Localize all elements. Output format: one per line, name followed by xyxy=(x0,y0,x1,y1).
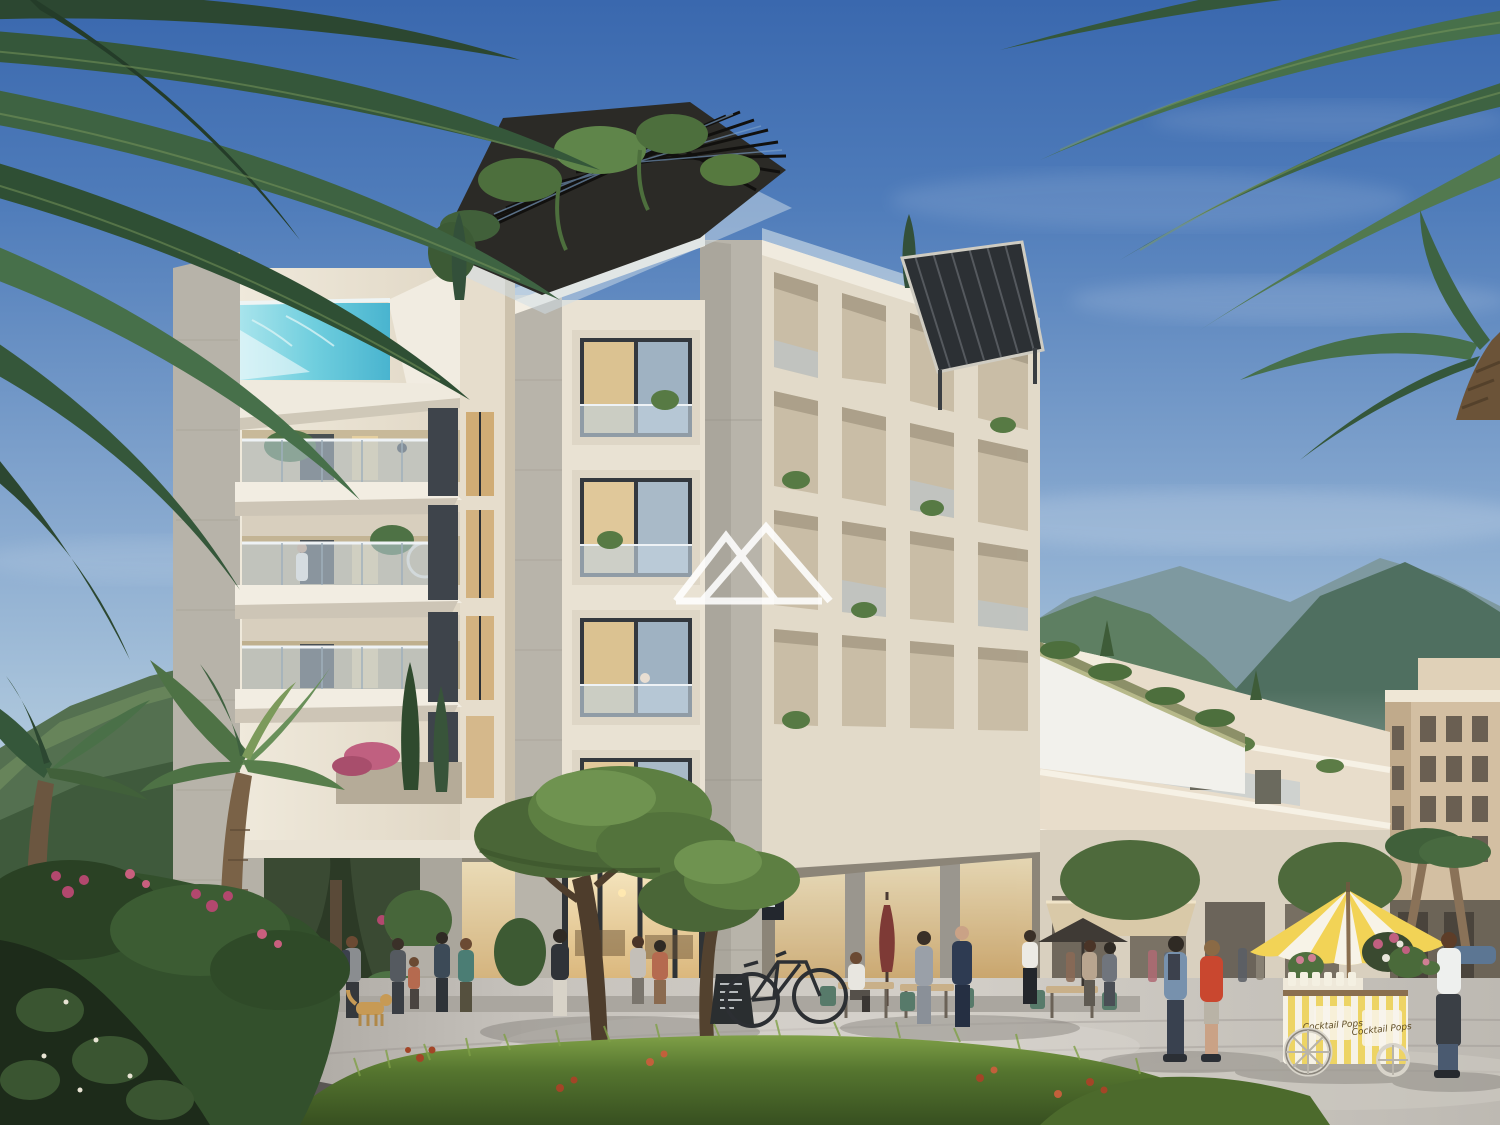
render-canvas: Cocktail Pops Cocktail Pops xyxy=(0,0,1500,1125)
architectural-render-scene: Cocktail Pops Cocktail Pops xyxy=(0,0,1500,1125)
balcony-person xyxy=(640,673,650,683)
window xyxy=(572,330,700,445)
window xyxy=(572,610,700,725)
window xyxy=(572,470,700,585)
balconies xyxy=(235,430,462,723)
